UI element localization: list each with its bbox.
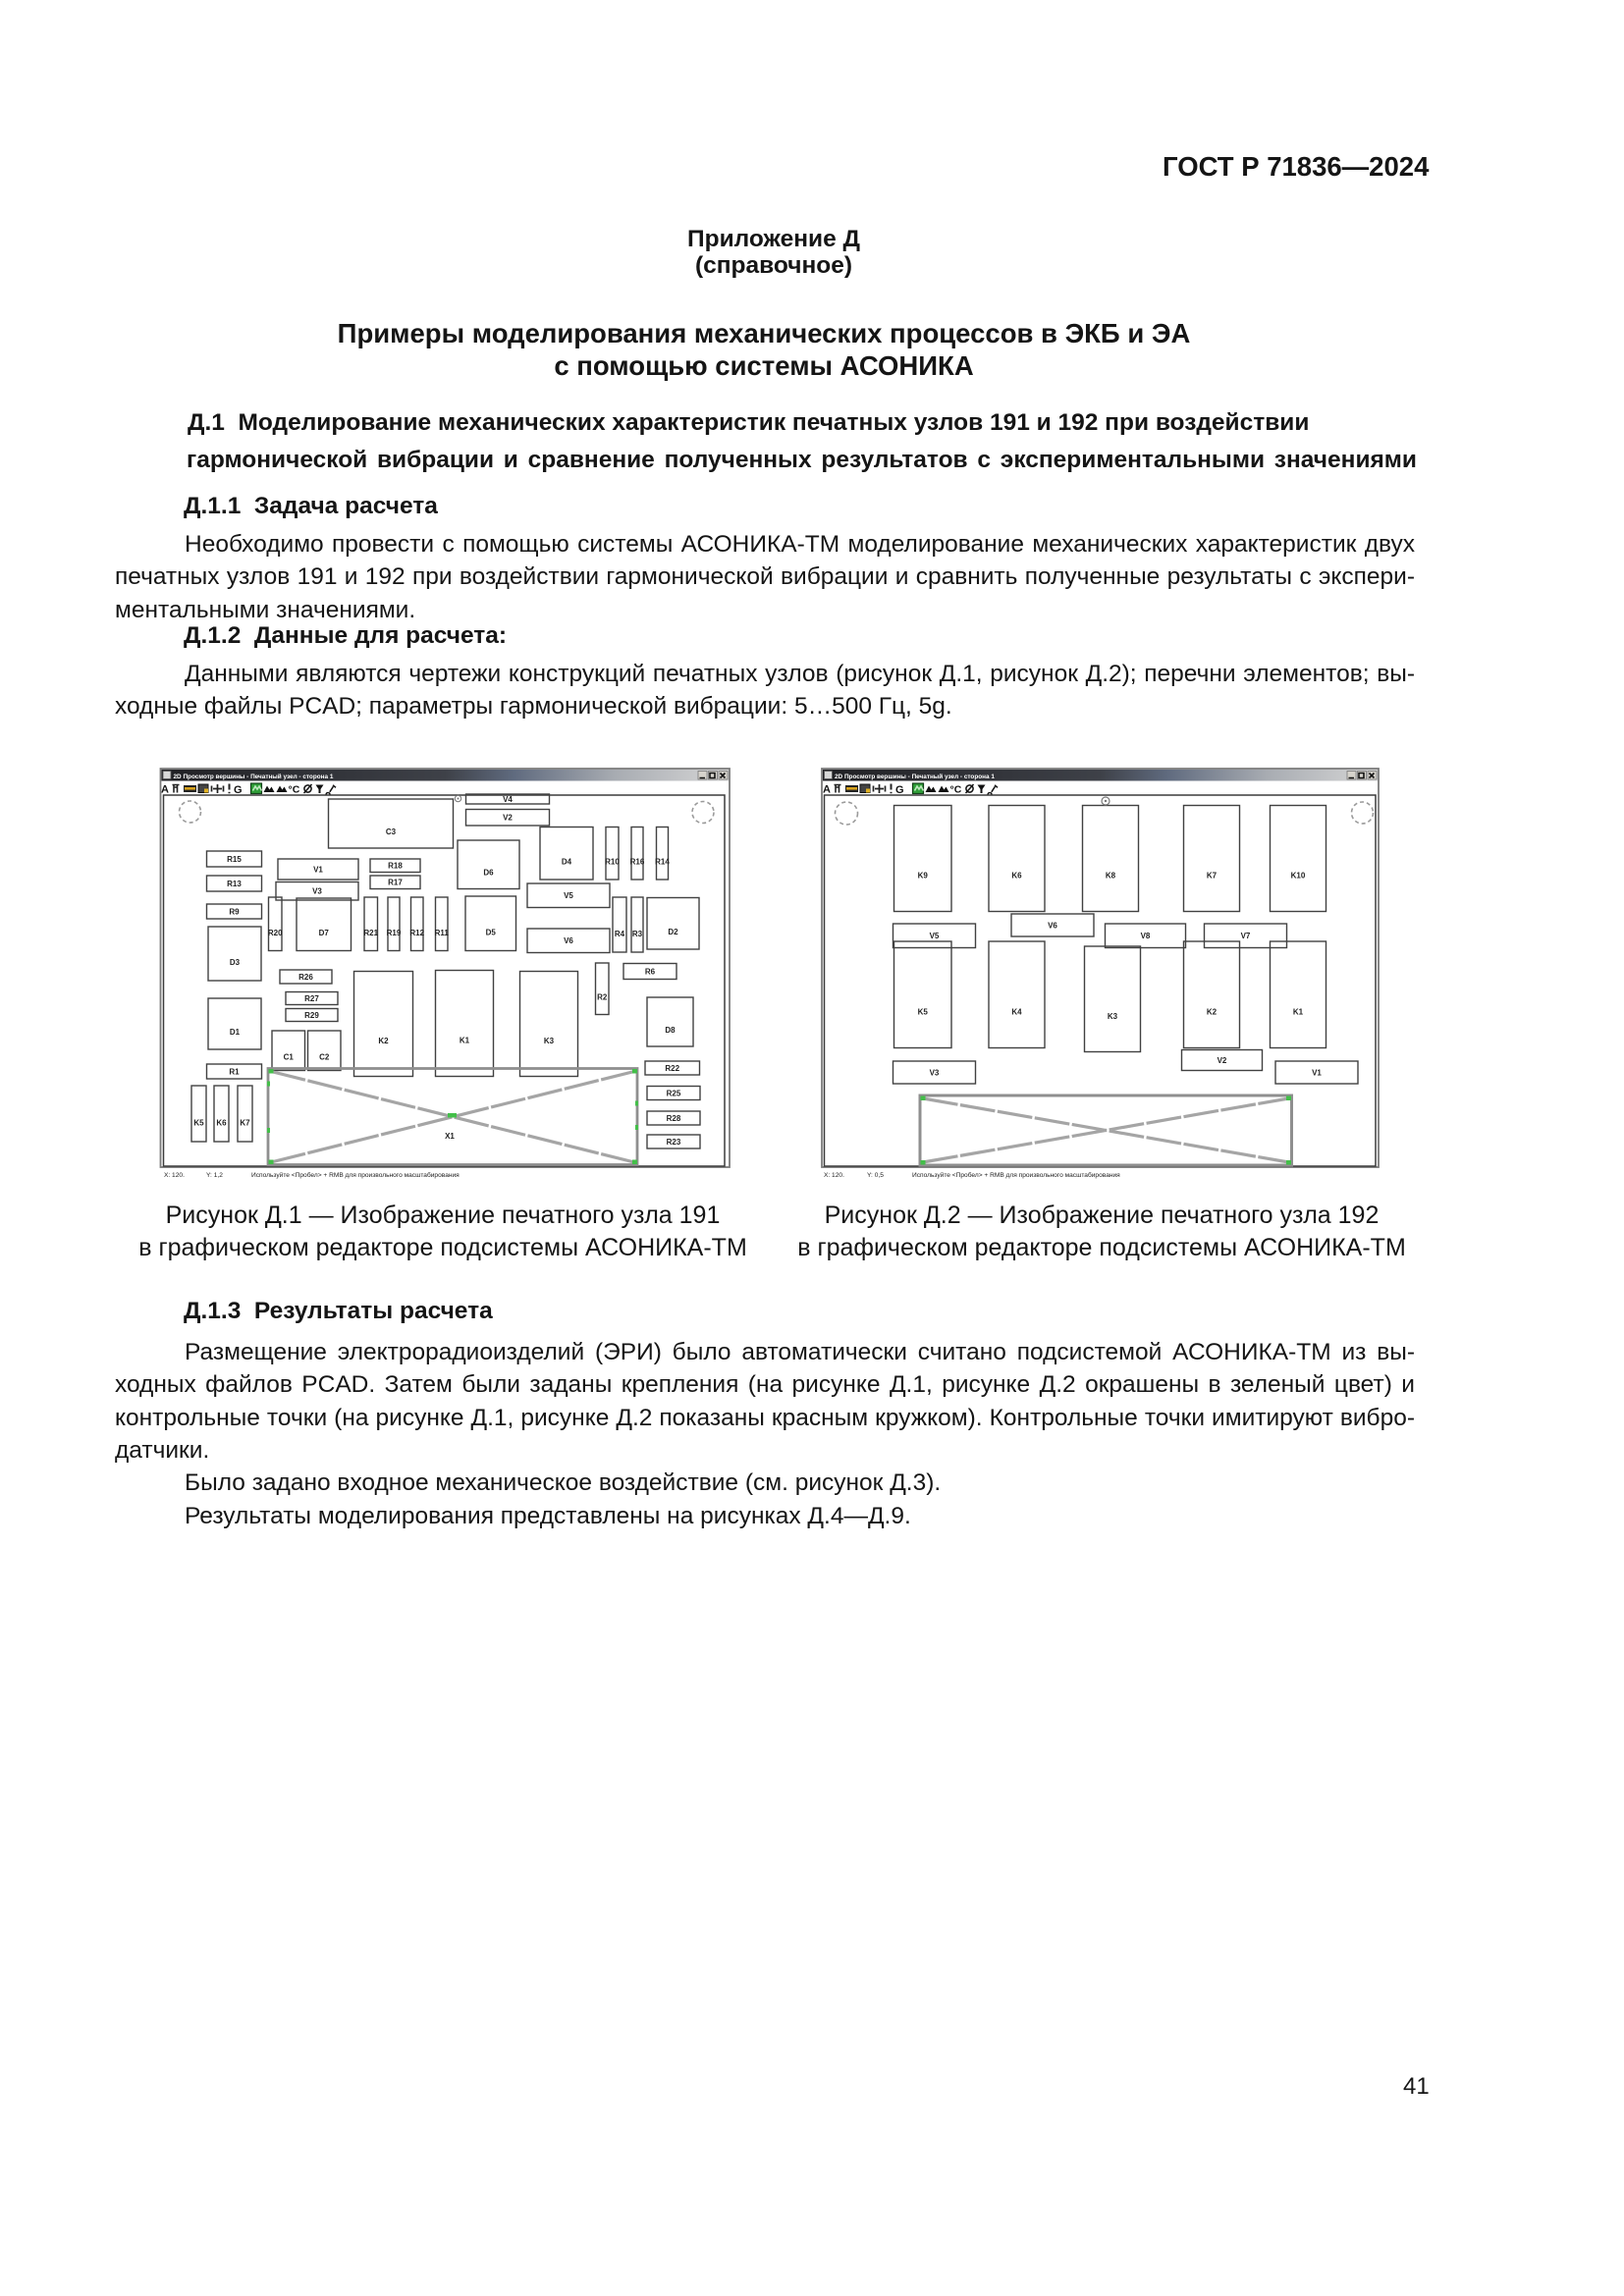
svg-text:D4: D4 <box>562 858 572 867</box>
svg-text:K9: K9 <box>918 872 929 881</box>
svg-text:K4: K4 <box>1011 1007 1022 1016</box>
svg-text:R15: R15 <box>227 855 242 864</box>
svg-text:X: 120.: X: 120. <box>824 1172 844 1179</box>
svg-text:D1: D1 <box>230 1028 241 1037</box>
svg-text:R21: R21 <box>363 929 378 937</box>
svg-text:Используйте <Пробел> + RMB для: Используйте <Пробел> + RMB для произволь… <box>912 1171 1120 1179</box>
svg-text:K5: K5 <box>193 1118 204 1127</box>
svg-text:R3: R3 <box>632 930 643 938</box>
svg-text:K10: K10 <box>1291 872 1306 881</box>
svg-text:K8: K8 <box>1106 872 1116 881</box>
svg-text:V2: V2 <box>503 814 513 823</box>
svg-text:K6: K6 <box>216 1118 227 1127</box>
svg-text:V7: V7 <box>1241 932 1251 940</box>
svg-text:K1: K1 <box>1293 1007 1304 1016</box>
svg-text:V3: V3 <box>930 1068 940 1077</box>
svg-text:K5: K5 <box>918 1007 929 1016</box>
svg-text:R1: R1 <box>229 1067 240 1076</box>
svg-text:V6: V6 <box>1048 921 1057 930</box>
svg-text:V3: V3 <box>312 887 322 896</box>
svg-text:R19: R19 <box>387 929 402 937</box>
svg-text:Используйте <Пробел> + RMB для: Используйте <Пробел> + RMB для произволь… <box>251 1171 460 1179</box>
svg-text:X: 120.: X: 120. <box>164 1172 185 1179</box>
svg-text:V1: V1 <box>313 865 323 874</box>
svg-text:V5: V5 <box>930 932 940 940</box>
svg-text:K3: K3 <box>1108 1012 1118 1021</box>
svg-text:V5: V5 <box>564 891 573 900</box>
svg-text:V1: V1 <box>1312 1068 1322 1077</box>
svg-text:R26: R26 <box>298 973 313 982</box>
svg-text:2D Просмотр вершины - Печатный: 2D Просмотр вершины - Печатный узел - ст… <box>174 773 334 780</box>
svg-text:C2: C2 <box>319 1053 330 1062</box>
svg-text:C1: C1 <box>284 1053 295 1062</box>
svg-text:R18: R18 <box>388 862 403 871</box>
svg-text:V4: V4 <box>503 795 513 804</box>
svg-text:D6: D6 <box>483 869 494 878</box>
svg-text:R16: R16 <box>630 858 645 867</box>
svg-text:V6: V6 <box>564 936 573 945</box>
svg-text:Y: 0,5: Y: 0,5 <box>867 1172 884 1179</box>
svg-text:D8: D8 <box>665 1026 676 1035</box>
svg-text:R10: R10 <box>605 858 620 867</box>
svg-text:K1: K1 <box>460 1037 470 1045</box>
svg-text:R14: R14 <box>655 858 670 867</box>
svg-text:K6: K6 <box>1011 872 1022 881</box>
svg-text:R9: R9 <box>229 907 240 916</box>
svg-text:R11: R11 <box>435 929 450 937</box>
svg-text:D5: D5 <box>486 928 497 936</box>
svg-text:C3: C3 <box>386 828 397 836</box>
svg-text:R13: R13 <box>227 880 242 888</box>
svg-text:D2: D2 <box>668 928 678 936</box>
svg-text:R29: R29 <box>304 1011 319 1020</box>
svg-text:K7: K7 <box>1207 872 1218 881</box>
svg-text:K2: K2 <box>1207 1007 1218 1016</box>
svg-text:Y: 1,2: Y: 1,2 <box>206 1172 223 1179</box>
svg-text:K7: K7 <box>240 1118 250 1127</box>
svg-text:R17: R17 <box>388 879 403 887</box>
svg-text:V2: V2 <box>1218 1056 1227 1065</box>
svg-text:R20: R20 <box>268 929 283 937</box>
svg-text:R6: R6 <box>645 967 656 976</box>
svg-text:V8: V8 <box>1141 932 1151 940</box>
svg-text:K2: K2 <box>378 1037 389 1045</box>
svg-text:R4: R4 <box>615 930 625 938</box>
svg-text:K3: K3 <box>544 1037 555 1045</box>
svg-text:D3: D3 <box>230 958 241 967</box>
svg-text:R22: R22 <box>665 1064 679 1073</box>
svg-text:R12: R12 <box>409 929 424 937</box>
svg-text:X1: X1 <box>445 1132 455 1141</box>
svg-text:R25: R25 <box>667 1089 681 1097</box>
svg-text:R28: R28 <box>667 1114 681 1123</box>
svg-text:R23: R23 <box>667 1138 681 1147</box>
svg-text:R27: R27 <box>304 994 319 1003</box>
svg-text:R2: R2 <box>597 992 608 1001</box>
svg-text:2D Просмотр вершины - Печатный: 2D Просмотр вершины - Печатный узел - ст… <box>835 773 995 780</box>
svg-text:D7: D7 <box>319 929 330 937</box>
